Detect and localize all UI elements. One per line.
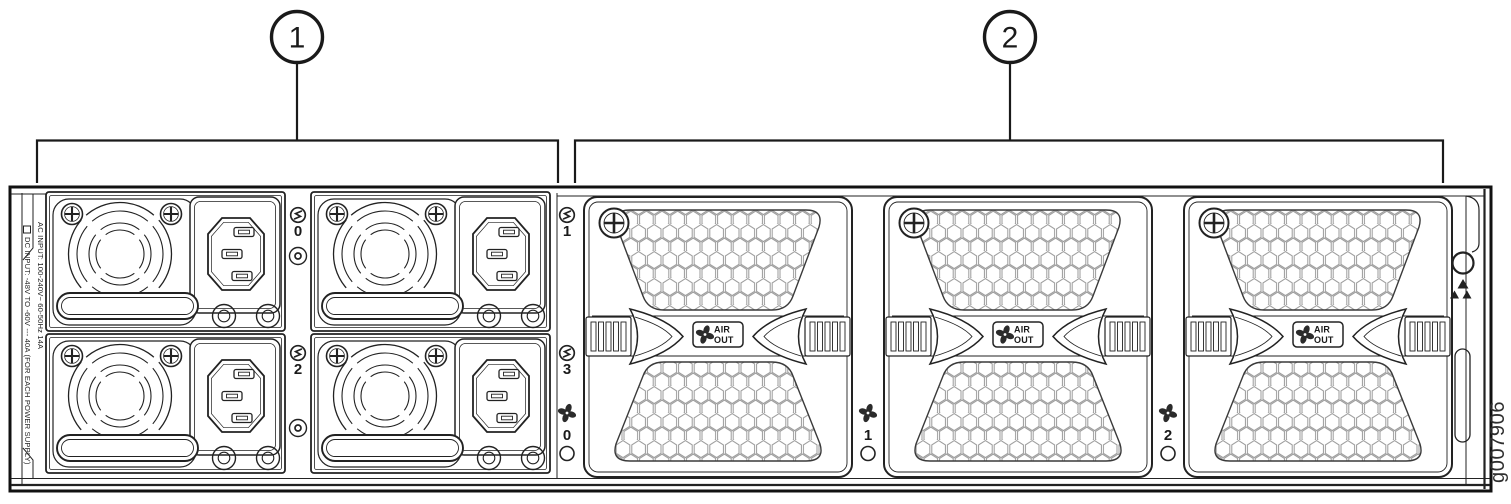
rear-panel-diagram: 1 2 AC INPUT: 100-240V~ 60-50Hz 14A DC I… xyxy=(0,0,1511,504)
air-out-badge-1: AIR OUT xyxy=(993,322,1043,347)
dc-input-label: DC INPUT: -48V TO -60V --- 40A (FOR EACH… xyxy=(23,237,32,465)
psu-slot-label-1: 1 xyxy=(563,223,571,240)
fan-slot-label-2: 2 xyxy=(1164,427,1172,444)
air-out-line1: AIR xyxy=(1314,325,1330,335)
callout-1-label: 1 xyxy=(289,22,306,55)
fan-slot-label-1: 1 xyxy=(864,427,872,444)
rear-panel-svg: 1 2 AC INPUT: 100-240V~ 60-50Hz 14A DC I… xyxy=(0,0,1511,504)
callout-1-bracket xyxy=(37,141,558,184)
air-out-badge-2: AIR OUT xyxy=(1293,322,1343,347)
psu-module-2 xyxy=(46,334,285,473)
callout-2-bracket xyxy=(575,141,1443,184)
psu-slot-label-0: 0 xyxy=(294,223,302,240)
psu-slot-label-3: 3 xyxy=(563,361,571,378)
psu-module-3 xyxy=(311,334,550,473)
air-out-line2: OUT xyxy=(1314,335,1334,345)
air-out-badge-0: AIR OUT xyxy=(693,322,743,347)
fan-slot-label-0: 0 xyxy=(563,427,571,444)
psu-module-1 xyxy=(311,192,550,331)
air-out-line1: AIR xyxy=(714,325,730,335)
ac-input-label: AC INPUT: 100-240V~ 60-50Hz 14A xyxy=(36,222,45,350)
figure-id: g007906 xyxy=(1487,401,1509,483)
callout-2-label: 2 xyxy=(1002,22,1019,55)
psu-module-0 xyxy=(46,192,285,331)
air-out-line2: OUT xyxy=(1014,335,1034,345)
psu-slot-label-2: 2 xyxy=(294,361,302,378)
air-out-line1: AIR xyxy=(1014,325,1030,335)
air-out-line2: OUT xyxy=(714,335,734,345)
